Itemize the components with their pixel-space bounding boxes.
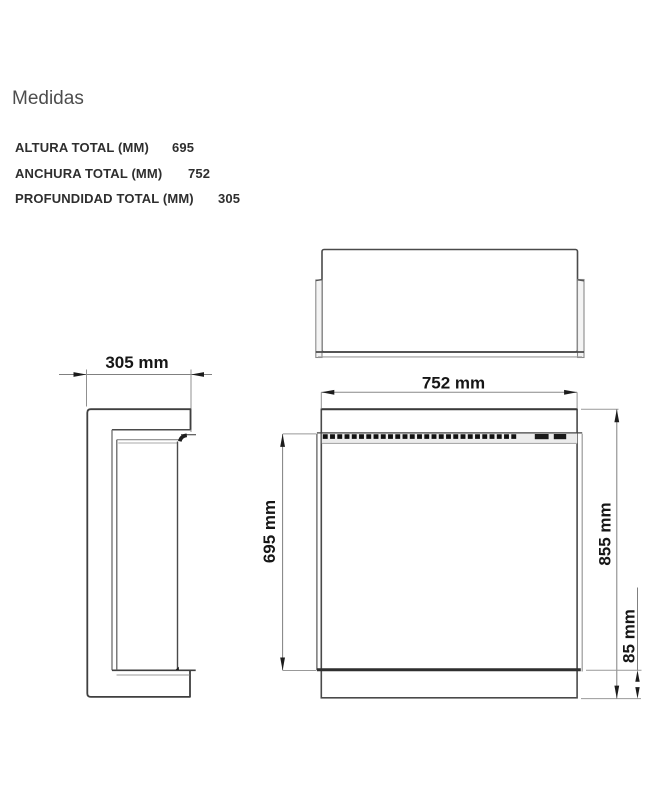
svg-text:752 mm: 752 mm — [422, 374, 485, 393]
svg-text:85 mm: 85 mm — [619, 609, 638, 663]
svg-text:305 mm: 305 mm — [105, 353, 168, 372]
svg-text:695 mm: 695 mm — [260, 500, 279, 563]
svg-text:855 mm: 855 mm — [595, 502, 614, 565]
